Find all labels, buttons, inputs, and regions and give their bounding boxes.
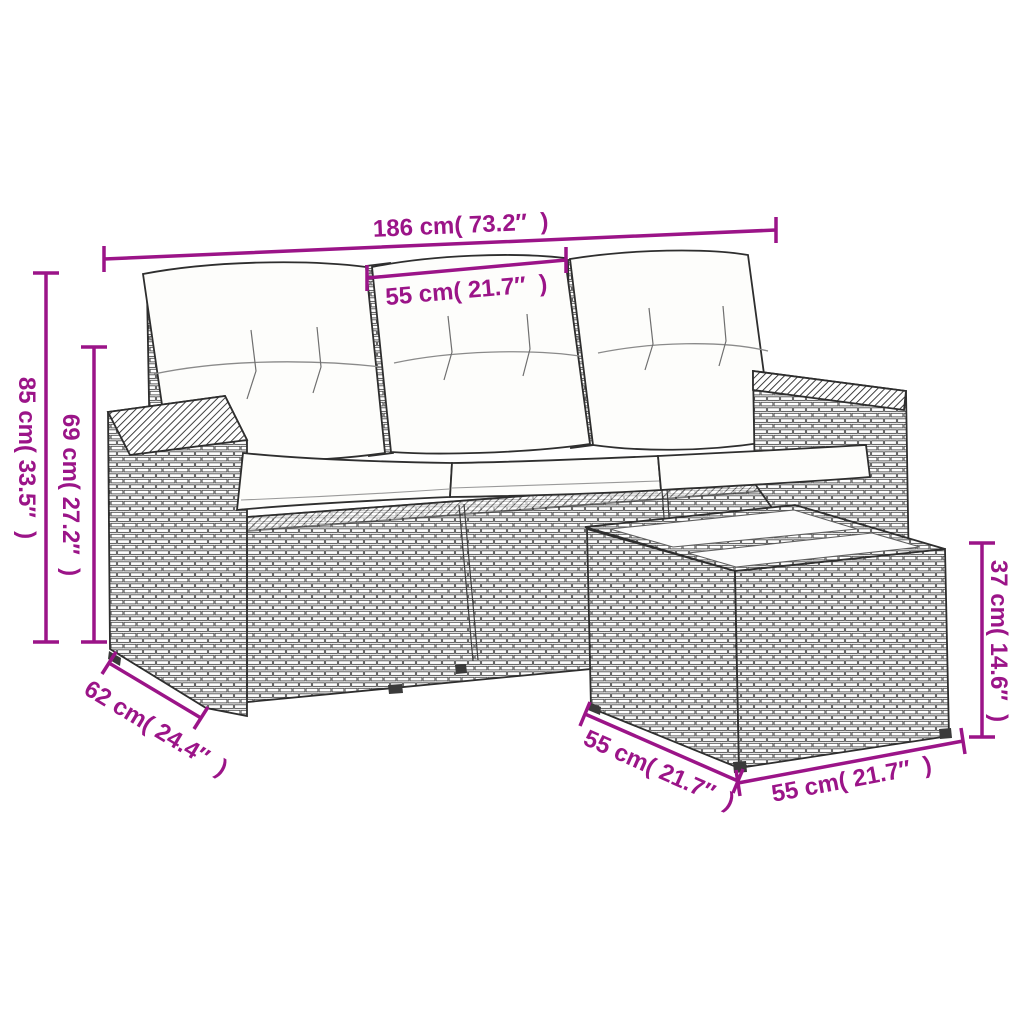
seat-cushion-left: [237, 453, 452, 510]
back-cushion-right-body: [570, 250, 773, 449]
left-armrest: [108, 396, 247, 716]
product-dimension-diagram: 186 cm( 73.2″ ) 55 cm( 21.7″ ) 85 cm( 33…: [0, 0, 1024, 1024]
dim-table-height: 37 cm( 14.6″ ): [969, 543, 1012, 737]
dim-sofa-height: 85 cm( 33.5″ ): [13, 273, 59, 642]
dim-sofa-width-label: 186 cm( 73.2″ ): [372, 208, 549, 243]
sofa-foot: [388, 684, 403, 694]
back-cushion-right: [570, 250, 773, 449]
sofa-foot: [455, 664, 467, 674]
dim-table-height-label: 37 cm( 14.6″ ): [985, 560, 1012, 722]
dim-arm-height-label: 69 cm( 27.2″ ): [57, 414, 84, 576]
seat-cushion-middle: [450, 456, 661, 497]
coffee-table: [585, 505, 952, 773]
table-foot: [939, 728, 952, 739]
dim-arm-height: 69 cm( 27.2″ ): [57, 347, 107, 642]
dim-sofa-height-label: 85 cm( 33.5″ ): [13, 377, 40, 539]
table-right-face: [735, 549, 949, 768]
